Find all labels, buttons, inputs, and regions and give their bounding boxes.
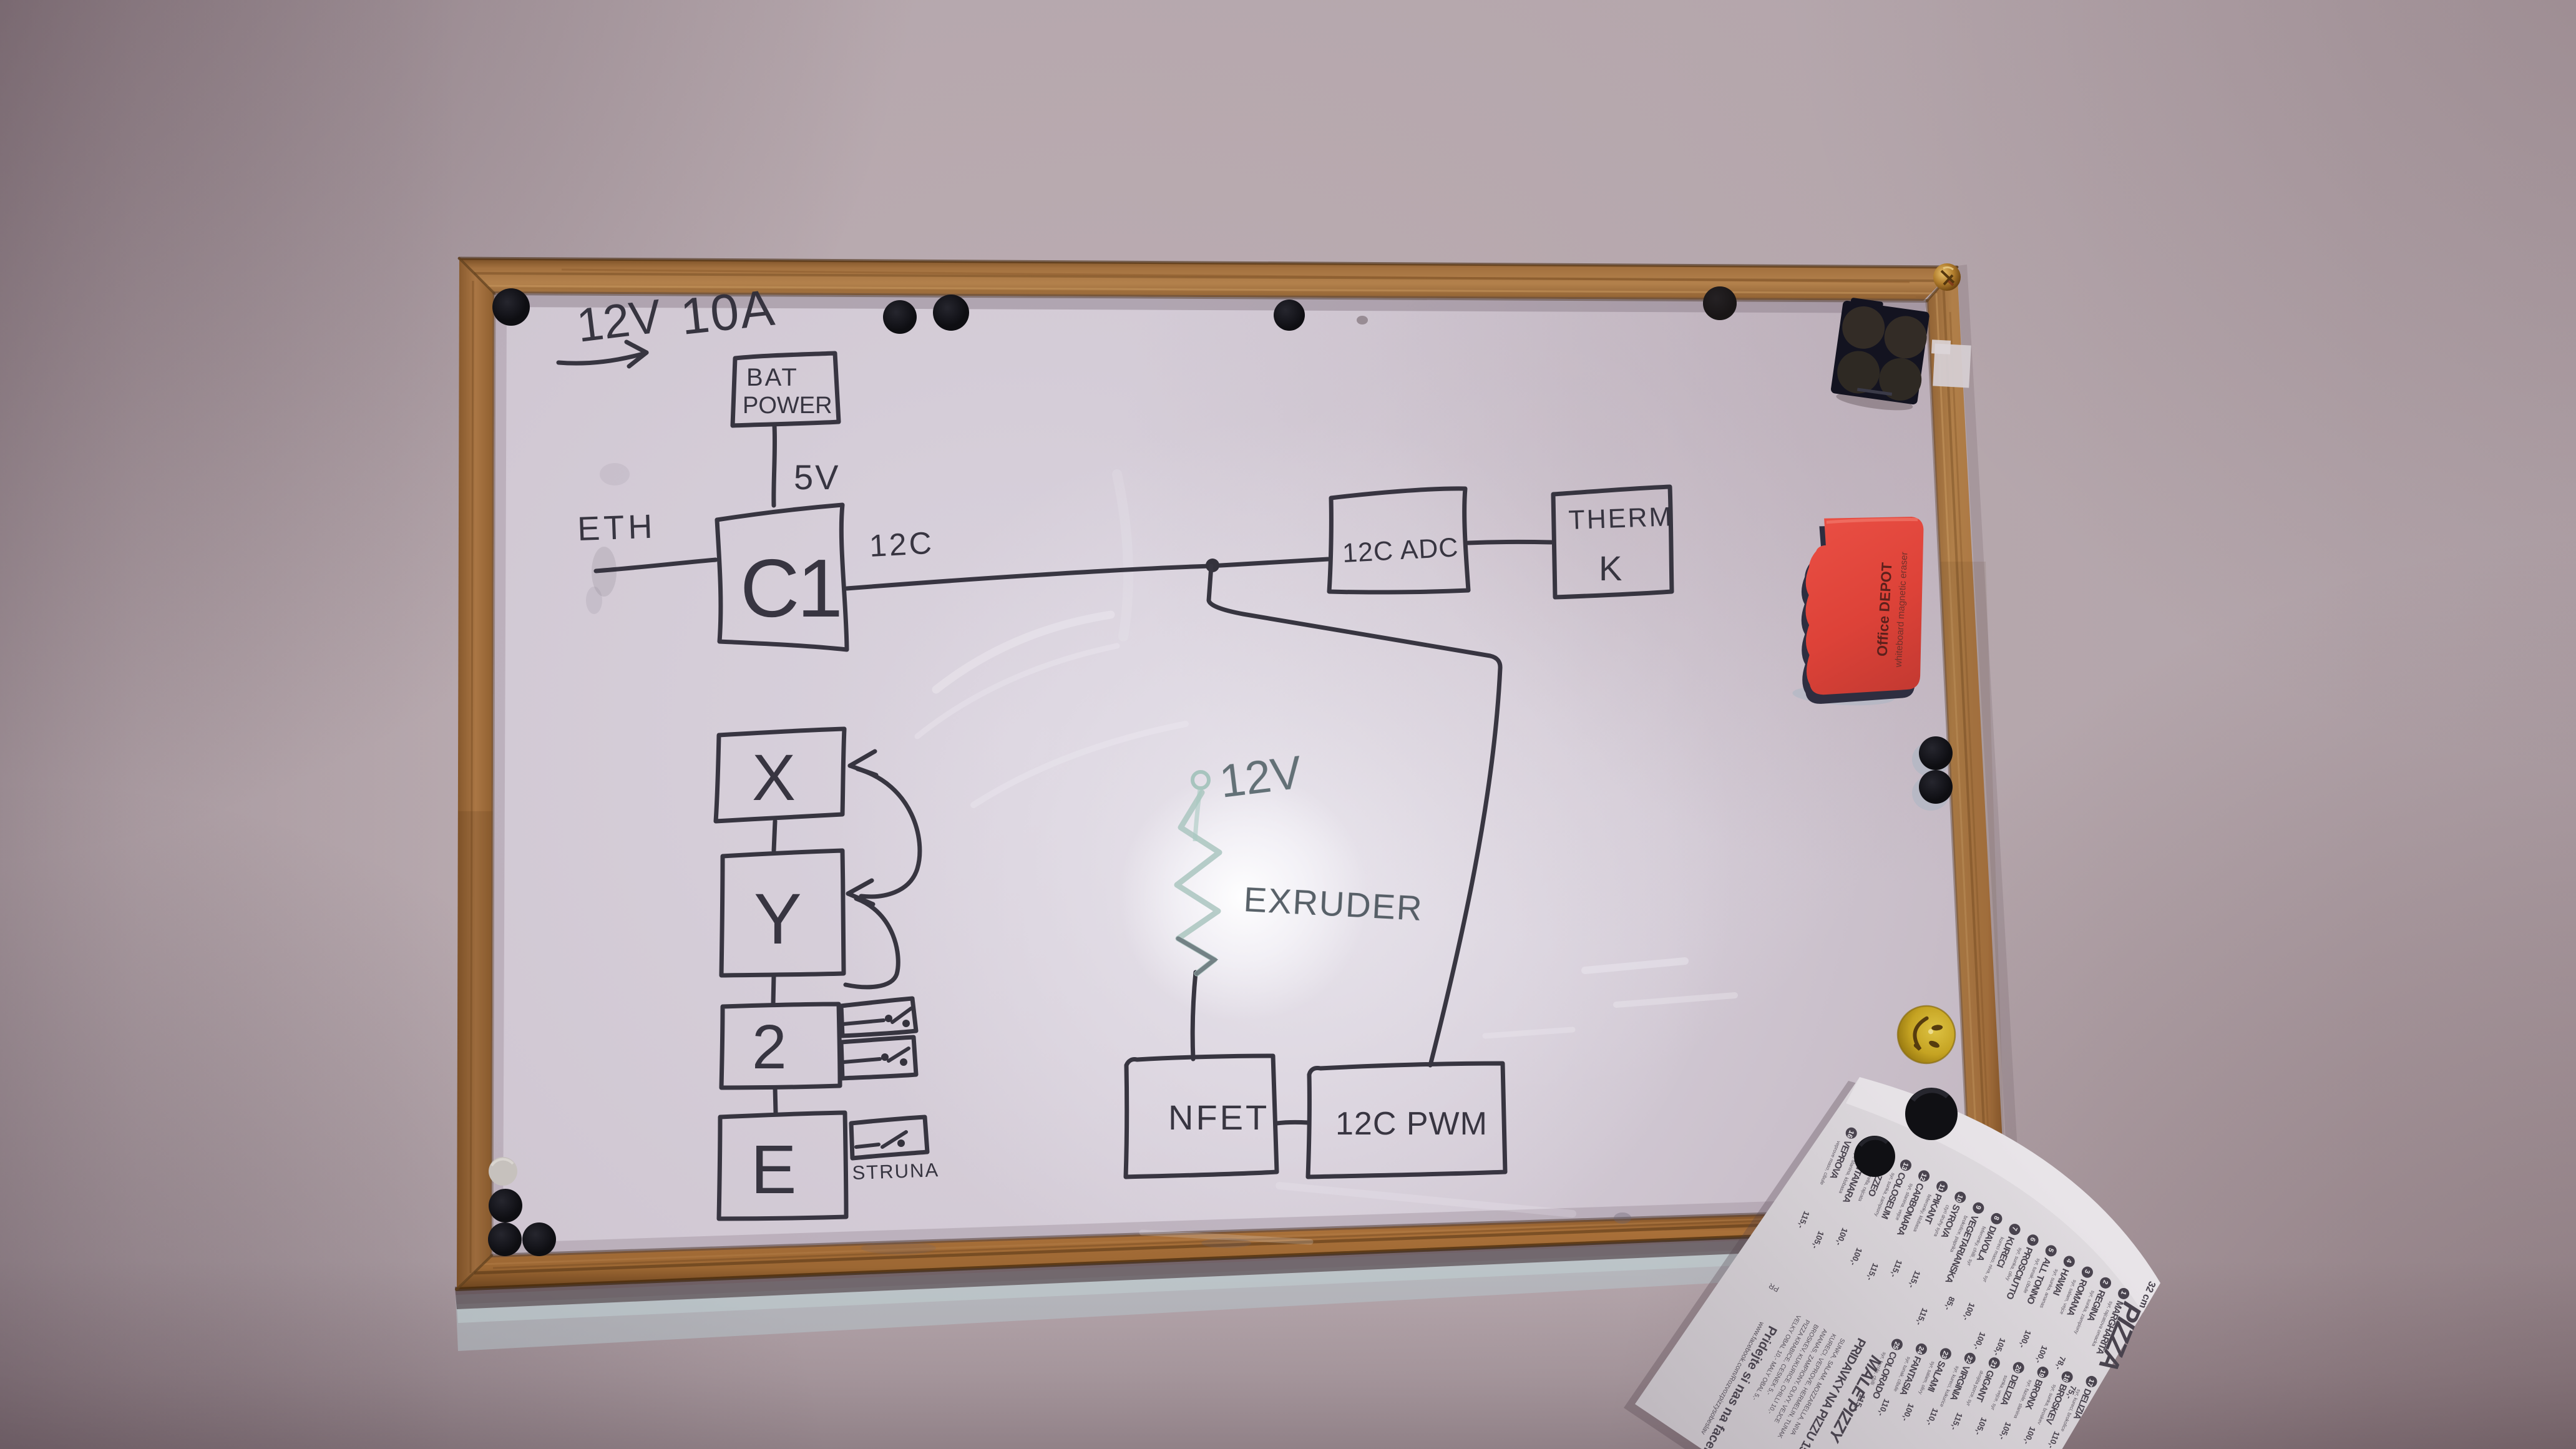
- svg-text:5V: 5V: [794, 457, 841, 497]
- svg-text:X: X: [752, 741, 796, 814]
- svg-text:12C: 12C: [869, 525, 935, 563]
- svg-text:STRUNA: STRUNA: [852, 1159, 940, 1184]
- svg-text:12C PWM: 12C PWM: [1335, 1106, 1488, 1142]
- svg-text:2: 2: [752, 1012, 787, 1082]
- svg-text:C1: C1: [740, 542, 841, 634]
- svg-text:10A: 10A: [678, 280, 778, 346]
- svg-text:THERM: THERM: [1568, 502, 1674, 535]
- svg-text:12V: 12V: [1217, 746, 1305, 807]
- svg-text:12C ADC: 12C ADC: [1342, 532, 1460, 568]
- svg-text:NFET: NFET: [1168, 1098, 1269, 1137]
- svg-text:BAT: BAT: [746, 364, 799, 391]
- svg-text:Y: Y: [754, 879, 802, 959]
- svg-text:12V: 12V: [574, 290, 665, 353]
- svg-text:E: E: [751, 1131, 796, 1208]
- svg-text:ETH: ETH: [577, 508, 656, 548]
- svg-text:K: K: [1599, 549, 1622, 588]
- svg-text:POWER: POWER: [743, 393, 832, 419]
